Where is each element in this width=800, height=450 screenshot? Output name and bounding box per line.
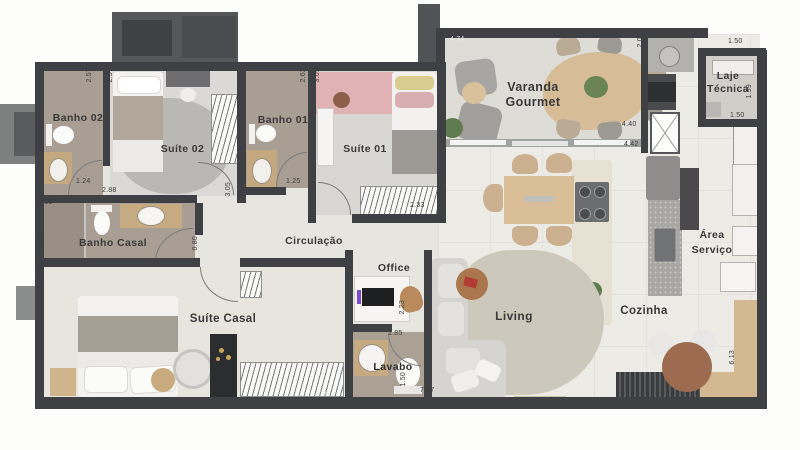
dim-label: 2.57 [107, 68, 114, 82]
monitor-glow [357, 290, 361, 304]
dim-label: 1.85 [388, 330, 402, 337]
round-table [662, 342, 712, 392]
wall [352, 324, 392, 332]
room-label-living: Living [472, 310, 556, 323]
decor-gold [216, 357, 220, 361]
wall [246, 187, 286, 195]
dim-label: 1.30 [39, 232, 46, 246]
wall [698, 119, 766, 127]
lounge-chair [173, 349, 213, 389]
bed-pillow [395, 92, 434, 108]
wall [35, 195, 197, 203]
burner [594, 186, 606, 198]
dim-label: 3.15 [38, 199, 52, 206]
toilet [94, 211, 110, 235]
wall [195, 203, 203, 235]
floorplan: Banho 02 Suíte 02 Banho 01 Suíte 01 Vara… [0, 0, 800, 450]
nightstand [50, 368, 76, 396]
dim-label: 2.02 [637, 33, 644, 47]
dim-label: 1.39 [746, 84, 753, 98]
exterior-block [182, 16, 236, 58]
wall [35, 397, 767, 409]
wall [240, 258, 345, 267]
chair [180, 88, 196, 102]
dim-label: 2.23 [399, 300, 406, 314]
tall-cabinet [680, 168, 699, 230]
dim-label: 3.05 [225, 182, 232, 196]
dresser [210, 334, 237, 397]
burner [594, 208, 606, 220]
room-label-banho01: Banho 01 [246, 114, 320, 127]
sink [137, 206, 165, 226]
room-label-banho02: Banho 02 [40, 112, 116, 125]
toilet [249, 124, 255, 144]
wall [35, 258, 200, 267]
dim-label: 1.50 [730, 112, 744, 119]
wall [437, 62, 446, 222]
oven-tower [646, 74, 676, 110]
banho-casal-shower [44, 203, 86, 264]
dim-label: 1.24 [76, 178, 90, 185]
room-label-area-servico: ÁreaServiço [682, 228, 742, 258]
room-label-varanda: VarandaGourmet [478, 80, 588, 110]
chair [512, 154, 538, 174]
exterior-block [122, 20, 172, 56]
wardrobe [240, 271, 262, 298]
dim-label: 4.40 [622, 121, 636, 128]
wall [757, 50, 767, 408]
dim-label: 2.88 [102, 187, 116, 194]
room-label-circulacao: Circulação [266, 235, 362, 248]
wall [641, 37, 648, 153]
fridge [646, 156, 680, 200]
chair [546, 153, 572, 173]
sink [252, 158, 272, 184]
exterior-block [16, 286, 35, 320]
dim-label: 0.80 [192, 236, 199, 250]
round-sink [659, 46, 680, 67]
dim-label: 6.38 [316, 389, 330, 396]
dim-label: 3.05 [314, 68, 321, 82]
chair [512, 226, 538, 246]
room-label-suite02: Suíte 02 [140, 143, 225, 156]
dim-label: 4.42 [624, 141, 638, 148]
decor-gold [219, 348, 224, 353]
dim-label: 2.33 [410, 202, 424, 209]
wall [308, 66, 316, 223]
wall [237, 62, 246, 203]
dim-label: 2.62 [300, 68, 307, 82]
burner [579, 186, 591, 198]
wardrobe [360, 186, 438, 215]
room-label-suite-casal: Suíte Casal [168, 313, 278, 326]
sliding-door-panel [512, 141, 568, 146]
wall [436, 28, 708, 38]
room-label-lavabo: Lavabo [356, 361, 430, 374]
sink [49, 158, 68, 182]
sliding-door-panel [574, 140, 630, 145]
bed-pillow [117, 76, 161, 94]
appliance [720, 262, 756, 292]
toilet [394, 386, 422, 394]
dim-label: 1.50 [400, 372, 407, 386]
bed-pillow [395, 76, 434, 90]
exterior-block [14, 112, 36, 156]
room-label-banho-casal: Banho Casal [56, 237, 170, 250]
table-handle [524, 196, 554, 202]
dim-label: 7.47 [420, 387, 434, 394]
room-label-office: Office [358, 262, 430, 275]
room-label-cozinha: Cozinha [601, 305, 687, 318]
washer [732, 164, 758, 216]
desk [166, 71, 210, 87]
shaft-x [650, 112, 680, 154]
dim-label: 6.13 [729, 350, 736, 364]
room-label-suite01: Suíte 01 [318, 143, 412, 156]
chair [333, 92, 350, 108]
chair [546, 226, 572, 246]
side-table [151, 368, 175, 392]
sofa-cushion [438, 302, 464, 336]
toilet [53, 126, 74, 144]
toilet [46, 124, 52, 146]
bed-blanket [113, 96, 163, 140]
toilet [256, 125, 276, 142]
kitchen-sink [654, 228, 676, 262]
dim-label: 2.60 [39, 266, 46, 280]
decor-gold [226, 355, 231, 360]
chair [483, 184, 503, 212]
bed-pillow [84, 366, 128, 393]
sliding-door-panel [450, 140, 506, 145]
dim-label: 4.74 [450, 36, 464, 43]
dim-label: 1.25 [286, 178, 300, 185]
wall [436, 28, 445, 66]
burner [579, 208, 591, 220]
dim-label: 2.57 [86, 68, 93, 82]
dim-label: 5.45 [432, 217, 446, 224]
monitor [362, 288, 394, 306]
dim-label: 1.50 [728, 38, 742, 45]
